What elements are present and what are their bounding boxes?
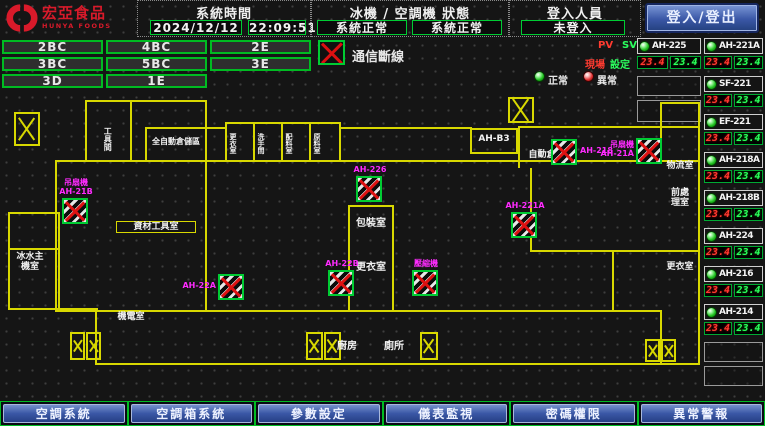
- stairs-icon: [508, 97, 534, 123]
- floor-button-3BC[interactable]: 3BC: [2, 57, 103, 71]
- device-吊扇機-AH-21B[interactable]: [62, 198, 88, 224]
- nav-parameter-setting-button[interactable]: 參數設定: [258, 404, 380, 423]
- pv-name-label: 現場: [585, 56, 605, 71]
- wall: [348, 205, 394, 207]
- unit-pv-value: 23.4: [704, 170, 732, 183]
- wall: [281, 122, 283, 162]
- room-label: AH-B3: [473, 134, 515, 144]
- unit-led-icon: [706, 193, 717, 204]
- wall: [392, 205, 394, 312]
- unit-name-label: SF-221: [719, 79, 751, 89]
- unit-AH-214[interactable]: AH-214: [704, 304, 763, 320]
- login-user-display: 未登入: [521, 20, 625, 35]
- room-label: 物流室: [663, 161, 697, 171]
- unit-AH-221A[interactable]: AH-221A: [704, 38, 763, 54]
- unit-pv-value: 23.4: [637, 56, 668, 69]
- floor-button-5BC[interactable]: 5BC: [106, 57, 207, 71]
- unit-led-icon: [639, 41, 650, 52]
- unit-name-label: AH-218B: [719, 193, 759, 203]
- normal-led-icon: [534, 71, 545, 82]
- chiller-status-display: 系統正常: [317, 20, 407, 35]
- wall: [309, 122, 311, 162]
- unit-AH-218B[interactable]: AH-218B: [704, 190, 763, 206]
- pv-header-label: PV: [598, 40, 613, 51]
- room-label: 配料室: [285, 125, 293, 161]
- wall: [205, 100, 207, 162]
- wall: [698, 102, 700, 365]
- normal-legend-label: 正常: [548, 72, 568, 87]
- unit-led-icon: [706, 155, 717, 166]
- company-logo: 宏亞食品 HUNYA FOODS: [6, 2, 134, 34]
- wall: [518, 126, 700, 128]
- nav-cell: 儀表監視: [383, 401, 511, 426]
- stairs-icon: [306, 332, 323, 360]
- nav-ac-system-button[interactable]: 空調系統: [3, 404, 125, 423]
- device-label: 壓縮機: [396, 260, 456, 269]
- nav-cell: 異常警報: [638, 401, 765, 426]
- empty-slot: [704, 342, 763, 362]
- stairs-icon: [14, 112, 40, 146]
- stairs-icon: [86, 332, 101, 360]
- wall: [530, 250, 700, 252]
- logo-subtitle: HUNYA FOODS: [42, 23, 112, 30]
- device-AH-221A[interactable]: [511, 212, 537, 238]
- abnormal-led-icon: [583, 71, 594, 82]
- unit-sv-value: 23.4: [734, 132, 763, 145]
- wall: [660, 102, 700, 104]
- room-label: 洗手間: [257, 125, 265, 161]
- wall: [95, 363, 700, 365]
- unit-led-icon: [706, 307, 717, 318]
- empty-slot: [637, 76, 701, 96]
- wall: [8, 248, 60, 250]
- unit-pv-value: 23.4: [704, 208, 732, 221]
- nav-cell: 參數設定: [255, 401, 383, 426]
- unit-AH-224[interactable]: AH-224: [704, 228, 763, 244]
- nav-ahu-system-button[interactable]: 空調箱系統: [131, 404, 253, 423]
- unit-sv-value: 23.4: [734, 208, 763, 221]
- wall: [253, 122, 255, 162]
- device-label: AH-226: [340, 166, 400, 175]
- device-壓縮機[interactable]: [412, 270, 438, 296]
- unit-name-label: AH-214: [719, 307, 753, 317]
- abnormal-legend-label: 異常: [597, 72, 617, 87]
- room-label: 原料室: [313, 125, 321, 161]
- stairs-icon: [645, 339, 660, 362]
- stairs-icon: [70, 332, 85, 360]
- unit-AH-218A[interactable]: AH-218A: [704, 152, 763, 168]
- wall: [58, 212, 60, 310]
- device-label: AH-22B: [312, 260, 372, 269]
- device-AH-226[interactable]: [356, 176, 382, 202]
- device-AH-218[interactable]: [551, 139, 577, 165]
- wall: [341, 127, 472, 129]
- wall: [85, 100, 207, 102]
- unit-pv-value: 23.4: [704, 132, 732, 145]
- device-吊扇機-AH-21A[interactable]: [636, 138, 662, 164]
- wall: [145, 127, 227, 129]
- unit-sv-value: 23.4: [734, 322, 763, 335]
- logo-title: 宏亞食品: [42, 6, 112, 21]
- nav-cell: 密碼權限: [510, 401, 638, 426]
- wall: [130, 102, 132, 162]
- room-label: 全自動倉儲區: [147, 137, 205, 146]
- room-label: 包裝室: [352, 218, 390, 230]
- wall: [470, 128, 472, 154]
- system-clock-display: 22:09:51: [248, 20, 306, 35]
- wall: [612, 250, 614, 312]
- unit-AH-216[interactable]: AH-216: [704, 266, 763, 282]
- unit-name-label: AH-225: [652, 41, 686, 51]
- floor-button-1E[interactable]: 1E: [106, 74, 207, 88]
- device-AH-22A[interactable]: [218, 274, 244, 300]
- unit-sv-value: 23.4: [734, 170, 763, 183]
- unit-pv-value: 23.4: [704, 56, 732, 69]
- unit-sv-value: 23.4: [734, 284, 763, 297]
- unit-name-label: AH-224: [719, 231, 753, 241]
- room-label: 工具間: [103, 120, 112, 158]
- unit-led-icon: [706, 79, 717, 90]
- nav-cell: 空調箱系統: [128, 401, 256, 426]
- ahu-status-display: 系統正常: [412, 20, 502, 35]
- wall: [470, 128, 518, 130]
- stairs-icon: [661, 339, 676, 362]
- floor-button-3D[interactable]: 3D: [2, 74, 103, 88]
- hmi-screen: 宏亞食品 HUNYA FOODS 系統時間 2024/12/12 22:09:5…: [0, 0, 765, 426]
- unit-sv-value: 23.4: [670, 56, 701, 69]
- wall: [8, 212, 60, 214]
- unit-name-label: AH-216: [719, 269, 753, 279]
- room-label: 廁所: [381, 341, 407, 353]
- device-label: 吊扇機 AH-21A: [582, 141, 634, 159]
- unit-pv-value: 23.4: [704, 246, 732, 259]
- room-label: 廚房: [334, 341, 360, 353]
- login-logout-button[interactable]: 登入/登出: [645, 3, 759, 33]
- wall: [225, 122, 341, 124]
- unit-name-label: AH-218A: [719, 155, 760, 165]
- room-label: 冰水主機室: [16, 252, 44, 273]
- device-label: 吊扇機 AH-21B: [46, 179, 106, 197]
- room-label: 資材工具室: [116, 221, 196, 233]
- empty-slot: [704, 366, 763, 386]
- floor-button-4BC[interactable]: 4BC: [106, 40, 207, 54]
- room-label: 前處理室: [669, 188, 691, 209]
- unit-pv-value: 23.4: [704, 322, 732, 335]
- unit-name-label: EF-221: [719, 117, 751, 127]
- floor-button-2E[interactable]: 2E: [210, 40, 311, 54]
- room-label: 機電室: [110, 312, 152, 322]
- nav-cell: 空調系統: [0, 401, 128, 426]
- unit-led-icon: [706, 41, 717, 52]
- floor-button-3E[interactable]: 3E: [210, 57, 311, 71]
- unit-name-label: AH-221A: [719, 41, 760, 51]
- device-label: AH-22A: [164, 282, 216, 291]
- comm-error-legend-label: 通信斷線: [352, 46, 404, 65]
- nav-meter-monitor-button[interactable]: 儀表監視: [386, 404, 508, 423]
- nav-password-authority-button[interactable]: 密碼權限: [513, 404, 635, 423]
- unit-sv-value: 23.4: [734, 56, 763, 69]
- unit-led-icon: [706, 269, 717, 280]
- unit-led-icon: [706, 231, 717, 242]
- logo-icon: [6, 3, 38, 33]
- wall: [55, 160, 700, 162]
- unit-led-icon: [706, 117, 717, 128]
- sv-name-label: 設定: [610, 56, 630, 71]
- nav-abnormal-alarm-button[interactable]: 異常警報: [641, 404, 763, 423]
- unit-EF-221[interactable]: EF-221: [704, 114, 763, 130]
- sv-header-label: SV: [622, 40, 637, 51]
- unit-sv-value: 23.4: [734, 94, 763, 107]
- room-label: 更衣室: [229, 125, 237, 161]
- wall: [85, 100, 87, 162]
- unit-pv-value: 23.4: [704, 94, 732, 107]
- system-date-display: 2024/12/12: [150, 20, 242, 35]
- unit-AH-225[interactable]: AH-225: [637, 38, 701, 54]
- wall: [470, 152, 518, 154]
- device-label: AH-221A: [495, 202, 555, 211]
- unit-SF-221[interactable]: SF-221: [704, 76, 763, 92]
- bottom-nav: 空調系統 空調箱系統 參數設定 儀表監視 密碼權限 異常警報: [0, 401, 765, 426]
- wall: [8, 212, 10, 310]
- unit-pv-value: 23.4: [704, 284, 732, 297]
- comm-error-legend-icon: [318, 40, 345, 65]
- wall: [225, 122, 227, 162]
- device-AH-22B[interactable]: [328, 270, 354, 296]
- unit-sv-value: 23.4: [734, 246, 763, 259]
- stairs-icon: [420, 332, 438, 360]
- room-label: 更衣室: [663, 262, 697, 272]
- floor-button-2BC[interactable]: 2BC: [2, 40, 103, 54]
